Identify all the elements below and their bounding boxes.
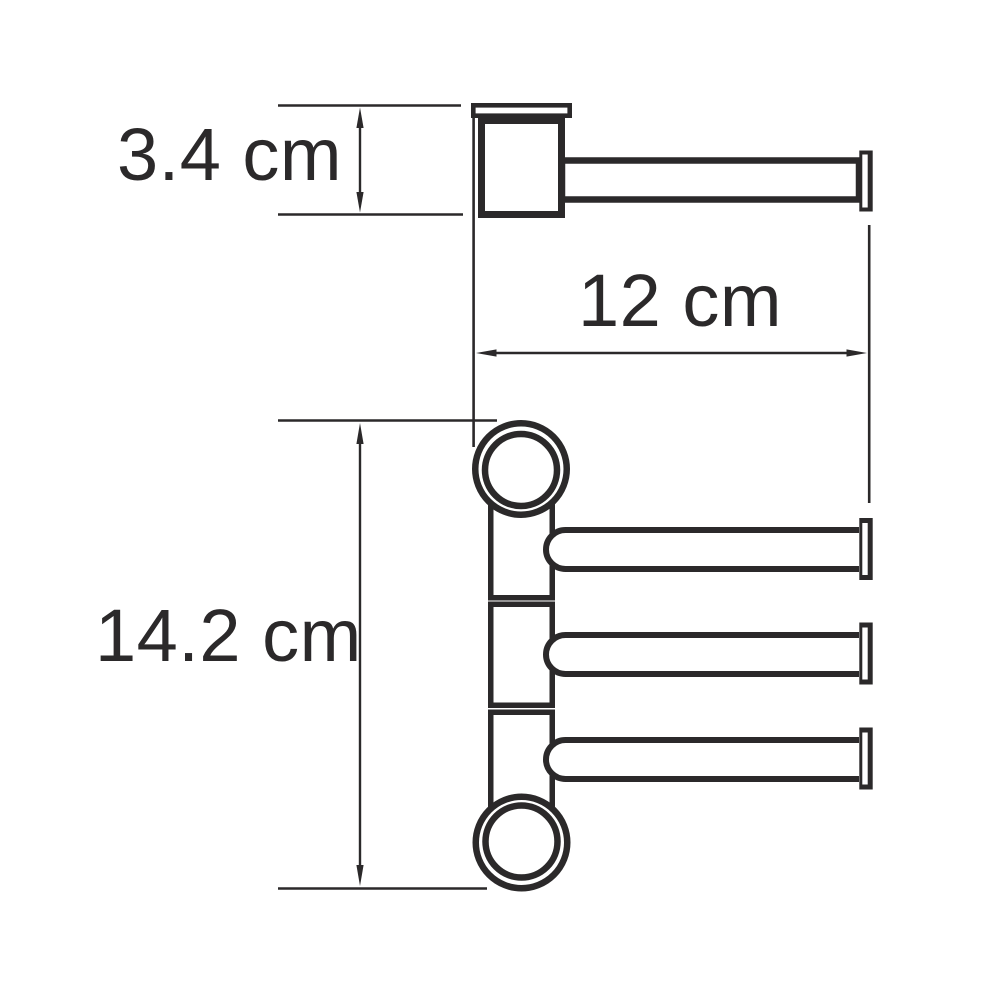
swivel-arm-1 [546,530,859,569]
arrowhead-right-icon [847,349,868,356]
dimension-label-total-height: 14.2 cm [95,594,362,677]
front-view-swivel-holder [475,423,872,888]
swivel-arm-2 [546,635,859,674]
top-view-arm-profile [473,105,872,214]
dimension-label-mount-height: 3.4 cm [117,113,342,196]
arrowhead-down-icon [356,192,363,213]
arrowhead-left-icon [476,349,497,356]
arrowhead-down-icon [356,865,363,886]
top-view-arm-end-flange-slot [862,155,867,208]
arm-2-end-flange-slot [862,628,867,680]
dimension-label-arm-length: 12 cm [578,259,782,342]
arrowhead-up-icon [356,108,363,129]
drawing-svg: 3.4 cm 12 cm 14.2 cm [0,0,1000,1000]
technical-drawing: 3.4 cm 12 cm 14.2 cm [0,0,1000,1000]
mount-cap-plate [473,105,569,115]
mount-body [482,121,562,215]
arrowhead-up-icon [356,423,363,444]
swivel-arm-3 [546,740,859,779]
arm-3-end-flange-slot [862,733,867,785]
top-view-arm-tube [562,161,859,200]
arm-1-end-flange-slot [862,523,867,575]
